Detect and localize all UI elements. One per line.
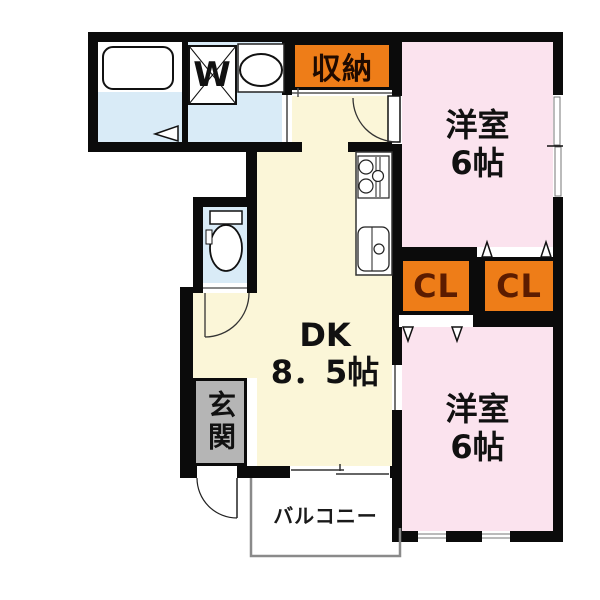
bedroom-bottom-floor bbox=[402, 327, 553, 531]
balcony-outline bbox=[251, 478, 400, 556]
dk-floor-strip bbox=[302, 142, 348, 152]
closet-right-label: CL bbox=[496, 267, 542, 305]
wall-kitchen-stub bbox=[348, 142, 392, 152]
storage-label: 収納 bbox=[311, 44, 373, 88]
dk-floor-upper bbox=[292, 94, 392, 142]
laundry-floor bbox=[188, 42, 282, 142]
bedroom-top-window-gap bbox=[553, 95, 563, 197]
toilet-floor bbox=[203, 207, 247, 283]
dk-floor-hall bbox=[193, 293, 257, 378]
entrance-label: 玄関 bbox=[200, 390, 240, 454]
balcony-window-gap bbox=[290, 466, 390, 478]
closet-right-door-gap bbox=[477, 247, 553, 257]
dk-floor-main bbox=[257, 152, 392, 466]
bedroom-top-floor bbox=[402, 42, 553, 247]
wall-toilet-left bbox=[193, 207, 203, 293]
storage-box: 収納 bbox=[292, 42, 392, 90]
laundry-door-gap bbox=[282, 95, 292, 142]
bedroom-bottom-window1-gap bbox=[418, 531, 446, 542]
closet-right-box: CL bbox=[481, 257, 557, 315]
balcony-label-text: バルコニー bbox=[273, 500, 378, 529]
bedroom-top-door-gap bbox=[392, 96, 402, 144]
entrance-door-gap bbox=[197, 466, 237, 478]
wall-toilet-top bbox=[193, 197, 257, 207]
toilet-door-gap bbox=[203, 283, 247, 293]
balcony-label: バルコニー bbox=[251, 478, 400, 550]
closet-left-label: CL bbox=[413, 267, 459, 305]
bedroom-bottom-window2-gap bbox=[482, 531, 510, 542]
bedroom-bottom-door-gap bbox=[392, 365, 402, 410]
entrance-door-icon bbox=[197, 478, 237, 518]
bathroom-floor-wet bbox=[98, 92, 182, 142]
storage-door-gap bbox=[292, 90, 392, 96]
entrance-box: 玄関 bbox=[193, 378, 247, 466]
closet-left-door-gap bbox=[399, 315, 473, 327]
floorplan-canvas: 収納 CL CL 玄関 bbox=[0, 0, 600, 600]
wall-toilet-right bbox=[247, 207, 257, 293]
closet-left-box: CL bbox=[399, 257, 473, 315]
wall-left-lower bbox=[180, 287, 193, 478]
wall-top bbox=[88, 32, 563, 42]
